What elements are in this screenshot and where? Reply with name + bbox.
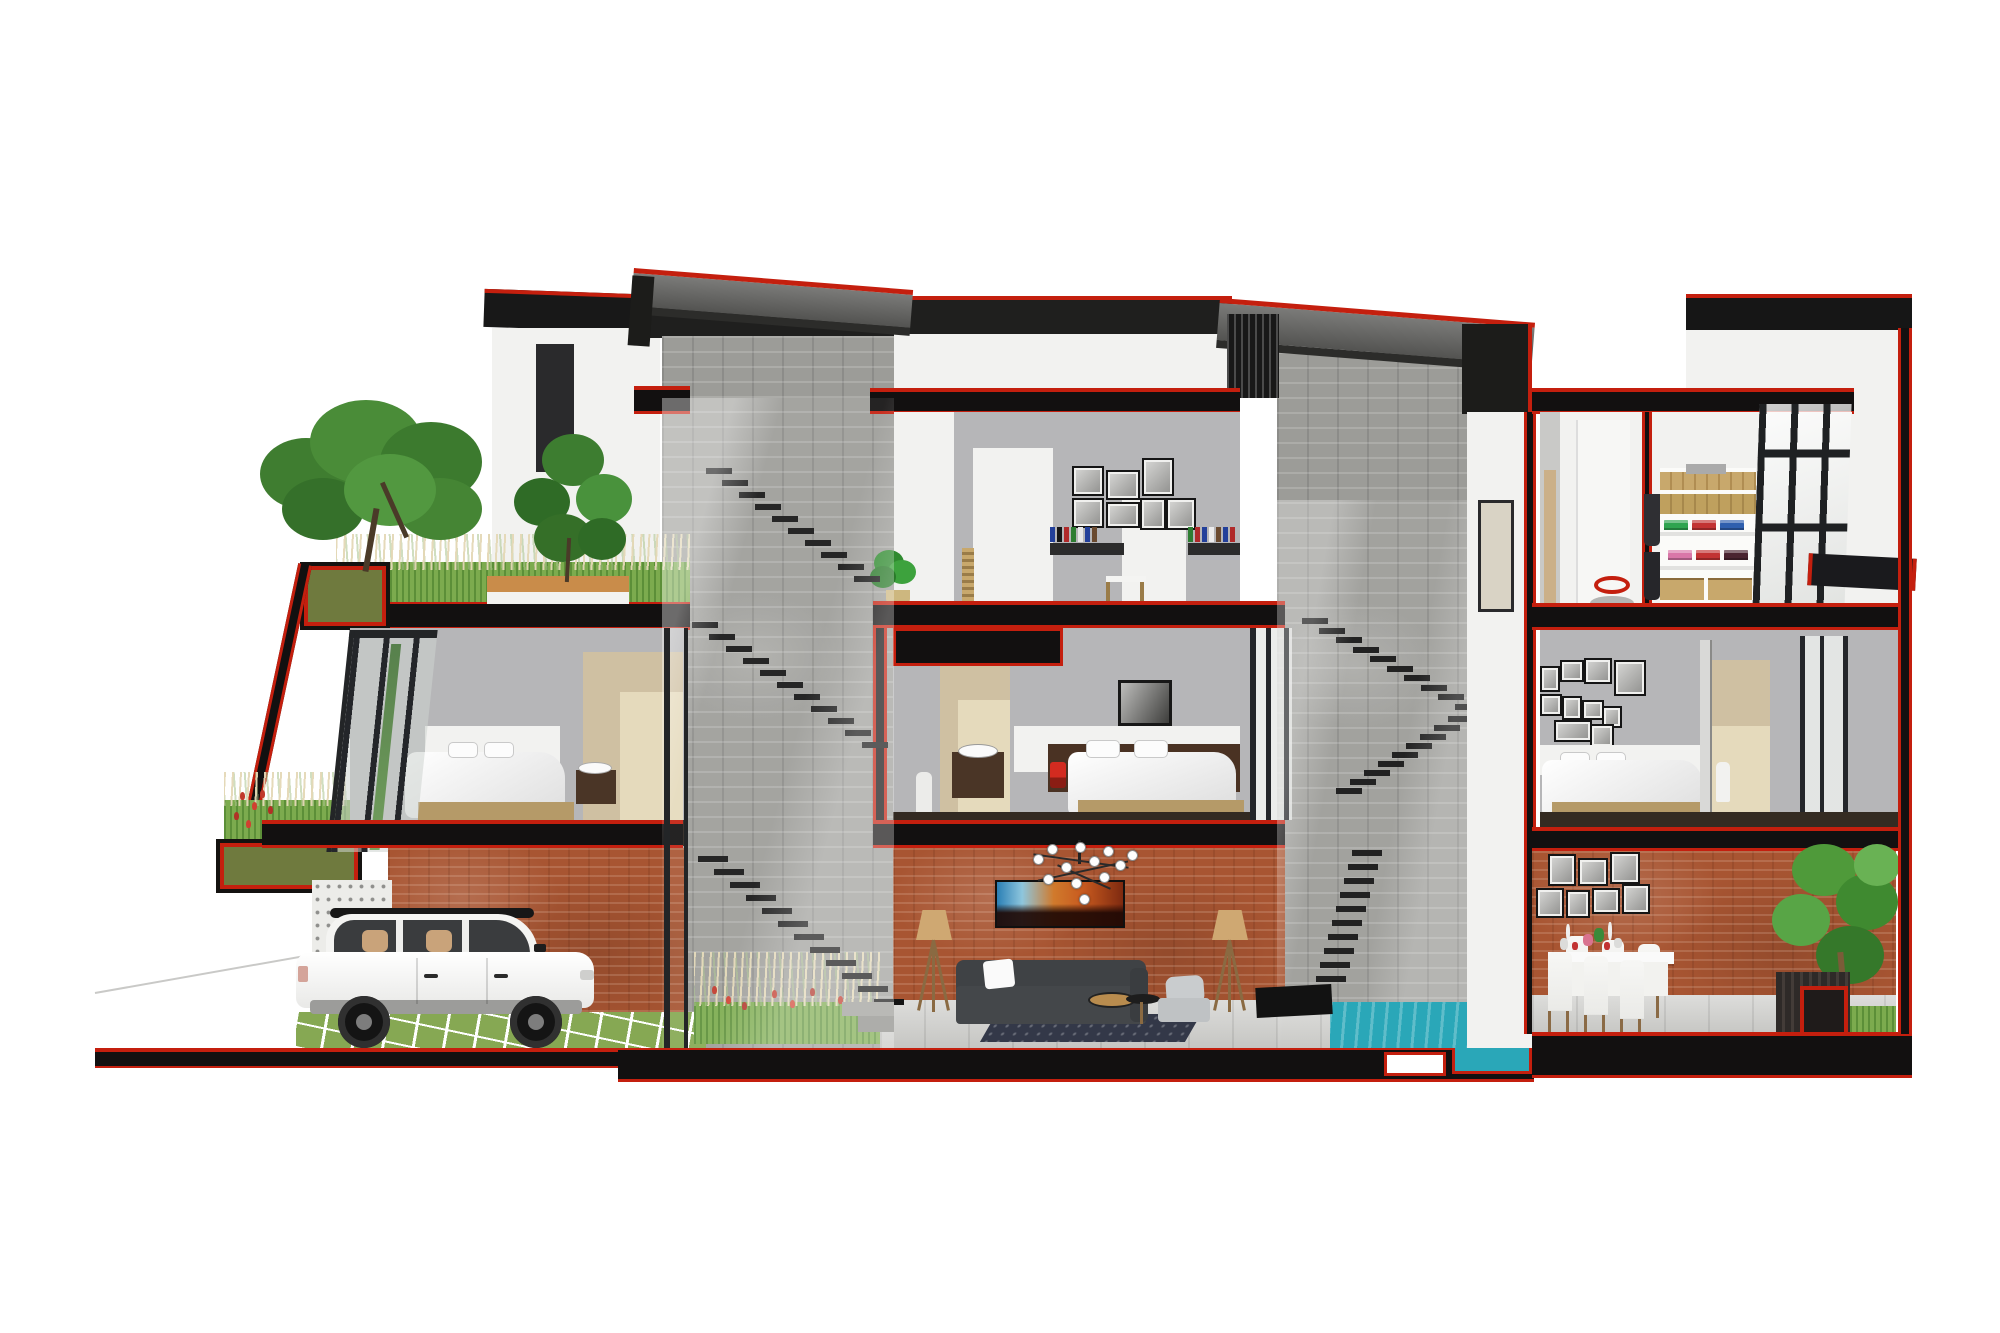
architectural-section-rendering xyxy=(0,0,2000,1333)
conifer-tree xyxy=(512,430,634,582)
ground-slab-right xyxy=(1532,1032,1912,1078)
dining-chairs-near xyxy=(0,0,2000,1333)
plumeria-tree xyxy=(252,386,496,574)
right-outer-wall xyxy=(1898,328,1912,1034)
